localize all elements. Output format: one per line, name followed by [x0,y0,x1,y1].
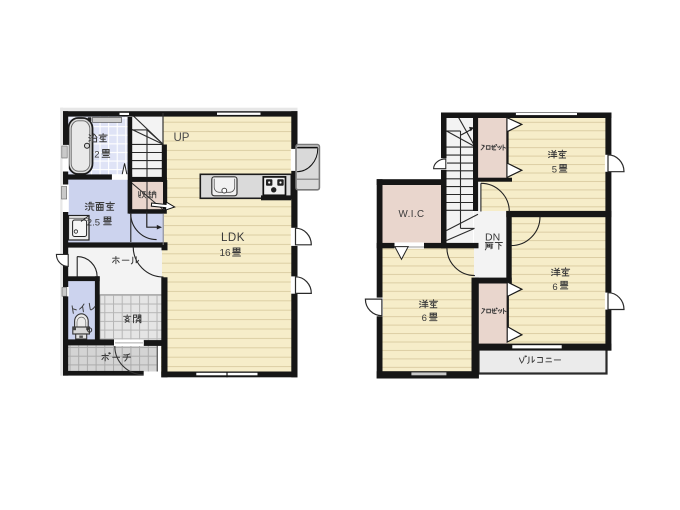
svg-text:6: 6 [552,282,557,293]
svg-text:LDK: LDK [221,232,245,244]
svg-text:5: 5 [552,164,557,175]
svg-text:W.I.C: W.I.C [399,209,425,220]
svg-text:2.5: 2.5 [87,217,100,228]
svg-text:16: 16 [220,248,232,259]
svg-text:2: 2 [94,150,99,161]
svg-text:DN: DN [485,231,500,243]
svg-text:6: 6 [422,313,427,324]
svg-text:UP: UP [174,132,190,144]
